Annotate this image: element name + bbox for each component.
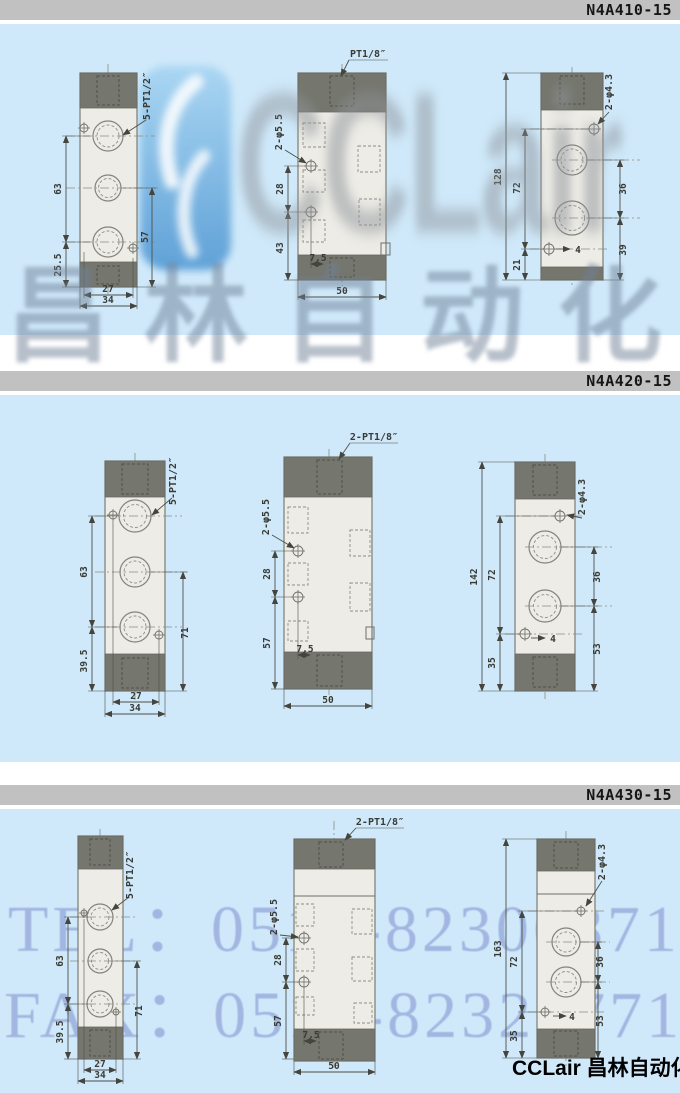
dim-71: 71 [180, 627, 191, 639]
back-view: 2-φ4.3 163 72 35 36 53 4 [493, 831, 610, 1067]
dim-142: 142 [469, 568, 480, 585]
port-label: 2-PT1/8″ [350, 432, 398, 443]
model-label: N4A410-15 [586, 1, 672, 19]
dim-57: 57 [273, 1015, 284, 1026]
dim-39-5: 39.5 [79, 649, 90, 672]
watermark-logo-text: CCLair [236, 64, 620, 264]
dim-34: 34 [129, 703, 141, 714]
dim-163: 163 [493, 940, 504, 957]
model-label: N4A420-15 [586, 372, 672, 390]
panel-n4a420: 5-PT1/2″ 63 39.5 71 27 34 [0, 395, 680, 762]
hole-label: 2-φ4.3 [597, 844, 608, 880]
section-header-bar: N4A410-15 [0, 0, 680, 22]
dim-36: 36 [592, 571, 603, 583]
dim-72: 72 [487, 569, 498, 580]
dim-50: 50 [322, 695, 334, 706]
dimension-drawings-n4a430: 5-PT1/2″ 63 39.5 71 27 34 [0, 809, 680, 1093]
dim-27: 27 [94, 1059, 105, 1070]
dim-63: 63 [79, 566, 90, 578]
front-view: 5-PT1/2″ 63 39.5 71 27 34 [55, 829, 145, 1084]
hole-label: 2-φ5.5 [269, 899, 280, 935]
dim-35: 35 [487, 657, 498, 669]
front-view: 5-PT1/2″ 63 39.5 71 27 34 [79, 453, 191, 717]
dim-28: 28 [262, 568, 273, 580]
dimension-drawings-n4a420: 5-PT1/2″ 63 39.5 71 27 34 [0, 395, 680, 762]
dim-57: 57 [140, 231, 151, 242]
dim-71: 71 [134, 1005, 145, 1017]
section-header-bar: N4A420-15 [0, 371, 680, 393]
model-label: N4A430-15 [586, 786, 672, 804]
panel-n4a430: TEL：0510-82306871 FAX：0510-82328771 [0, 809, 680, 1093]
brand-footer-text: CCLair 昌林自动化 [512, 1052, 680, 1082]
hole-label: 2-φ5.5 [261, 499, 272, 535]
port-label: 5-PT1/2″ [168, 457, 179, 505]
dim-28: 28 [273, 954, 284, 966]
dim-7-5: 7.5 [296, 644, 313, 655]
dim-63: 63 [53, 183, 64, 195]
dim-53: 53 [592, 643, 603, 655]
dim-36: 36 [595, 956, 606, 968]
hole-label: 2-φ4.3 [577, 479, 588, 515]
dim-63: 63 [55, 955, 66, 967]
dim-35: 35 [509, 1030, 520, 1042]
dim-27: 27 [130, 691, 141, 702]
dim-57: 57 [262, 637, 273, 648]
port-label: 2-PT1/8″ [356, 817, 404, 828]
dim-39-5: 39.5 [55, 1020, 66, 1043]
side-view: 2-PT1/8″ 2-φ5.5 28 57 7.5 50 [261, 432, 398, 709]
side-view: 2-PT1/8″ 2-φ5.5 28 57 7.5 50 [269, 817, 404, 1075]
dim-53: 53 [595, 1015, 606, 1027]
valve-datasheet-page: N4A410-15 [0, 0, 680, 1093]
panel-n4a410: 5-PT1/2″ 63 25.5 57 27 34 [0, 24, 680, 335]
back-view: 2-φ4.3 142 72 35 36 53 4 [469, 454, 612, 699]
port-label: 5-PT1/2″ [142, 72, 153, 120]
section-header-bar: N4A430-15 [0, 785, 680, 807]
dim-7-5: 7.5 [302, 1030, 319, 1041]
port-label: 5-PT1/2″ [125, 851, 136, 899]
watermark-chinese-text: 昌林自动化 [6, 264, 680, 368]
dim-4: 4 [569, 1012, 575, 1023]
dim-50: 50 [328, 1061, 340, 1072]
dim-34: 34 [94, 1070, 106, 1081]
dim-4: 4 [550, 634, 556, 645]
dim-72: 72 [509, 956, 520, 967]
